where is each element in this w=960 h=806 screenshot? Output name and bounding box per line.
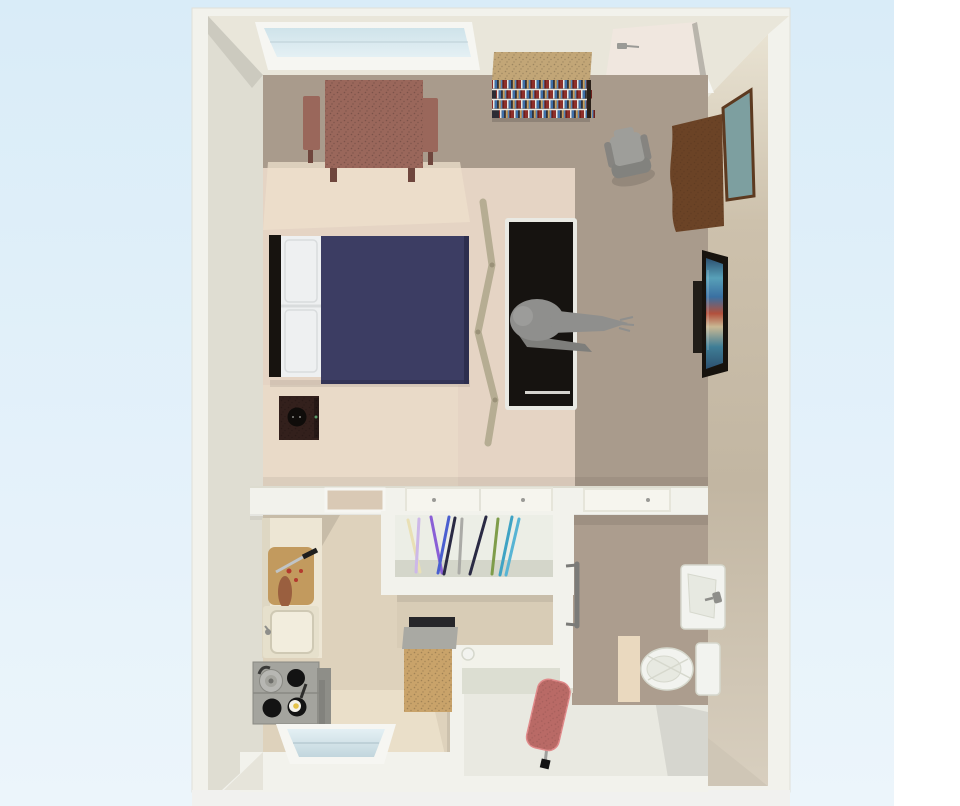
- closet: [381, 511, 574, 595]
- bath-mat[interactable]: [618, 636, 640, 702]
- cup: [462, 648, 474, 660]
- threshold-latch-icon: [521, 498, 525, 502]
- sink-bowl: [688, 574, 716, 618]
- bed-blanket: [321, 236, 468, 384]
- dining-chair-right[interactable]: [421, 98, 438, 152]
- table-texture: [325, 80, 423, 168]
- book-row: [492, 100, 588, 109]
- doorway-opening-left[interactable]: [326, 489, 384, 511]
- bed-headboard: [269, 235, 281, 377]
- double-bed[interactable]: [269, 235, 470, 387]
- speaker-woofer-icon: [288, 408, 307, 427]
- sink-basin: [271, 611, 313, 653]
- floor-window-light: [263, 162, 470, 230]
- apartment: [192, 8, 790, 806]
- stove[interactable]: [253, 662, 331, 726]
- door-panel: [605, 22, 707, 82]
- bathroom-sink[interactable]: [681, 565, 725, 629]
- threshold-latch-icon: [432, 498, 436, 502]
- tomato-slice: [287, 569, 292, 574]
- speaker[interactable]: [279, 396, 319, 440]
- person-finger: [621, 324, 634, 325]
- kitchen-sink[interactable]: [263, 606, 319, 658]
- bookshelf-texture: [492, 52, 592, 80]
- table-leg: [330, 168, 337, 182]
- toilet[interactable]: [641, 643, 720, 695]
- bookshelf-side: [587, 80, 591, 118]
- dining-chair-left[interactable]: [303, 96, 320, 150]
- bookshelf[interactable]: [492, 52, 595, 122]
- blanket-foot-edge: [321, 380, 468, 384]
- bathroom-wall-shadow: [572, 515, 708, 525]
- pot-knob: [269, 679, 274, 684]
- mirror: [723, 90, 754, 200]
- skylight-window[interactable]: [255, 22, 480, 70]
- toilet-tank: [696, 643, 720, 695]
- door-handle-lever: [627, 46, 639, 47]
- dresser-texture: [670, 114, 724, 232]
- tomato-slice: [299, 569, 303, 573]
- side-table-top: [462, 645, 560, 668]
- screen-hinge: [476, 330, 481, 335]
- blanket-edge: [464, 236, 469, 384]
- floorplan-render: [0, 0, 960, 806]
- screen-hinge: [490, 263, 495, 268]
- book-row: [492, 80, 588, 89]
- egg-yolk: [293, 703, 299, 709]
- bread: [278, 576, 292, 608]
- door-handle-icon: [617, 43, 627, 49]
- hall-wall: [450, 645, 464, 780]
- stove-shadow: [319, 680, 325, 726]
- speaker-dot: [292, 416, 294, 418]
- person-head: [513, 306, 533, 326]
- burner-icon: [287, 669, 305, 687]
- doorway-double-center[interactable]: [406, 488, 552, 512]
- speaker-led-icon: [315, 416, 318, 419]
- floorplan-stage: [0, 0, 960, 806]
- cabinet[interactable]: [402, 617, 458, 712]
- cabinet-top: [402, 627, 458, 649]
- doorway-opening-right[interactable]: [584, 489, 670, 511]
- tomato-slice: [294, 578, 298, 582]
- bookshelf-shadow: [492, 118, 590, 122]
- chair-leg: [428, 152, 433, 165]
- sofa-seam: [525, 391, 570, 394]
- background-right-margin: [894, 0, 960, 806]
- floor-wall-shadow: [263, 477, 708, 487]
- threshold-latch-icon: [646, 498, 650, 502]
- burner-icon: [263, 699, 282, 718]
- chair-leg: [308, 150, 313, 163]
- kitchen-counter[interactable]: [262, 518, 322, 658]
- screen-hinge: [493, 398, 498, 403]
- bottom-wall-right: [452, 776, 708, 792]
- cabinet-texture: [404, 649, 452, 712]
- table-leg: [408, 168, 415, 182]
- kitchen-window[interactable]: [276, 724, 396, 764]
- bottom-ground-strip: [192, 790, 790, 806]
- speaker-dot: [299, 416, 301, 418]
- book-row: [499, 110, 595, 118]
- book-row: [496, 90, 592, 99]
